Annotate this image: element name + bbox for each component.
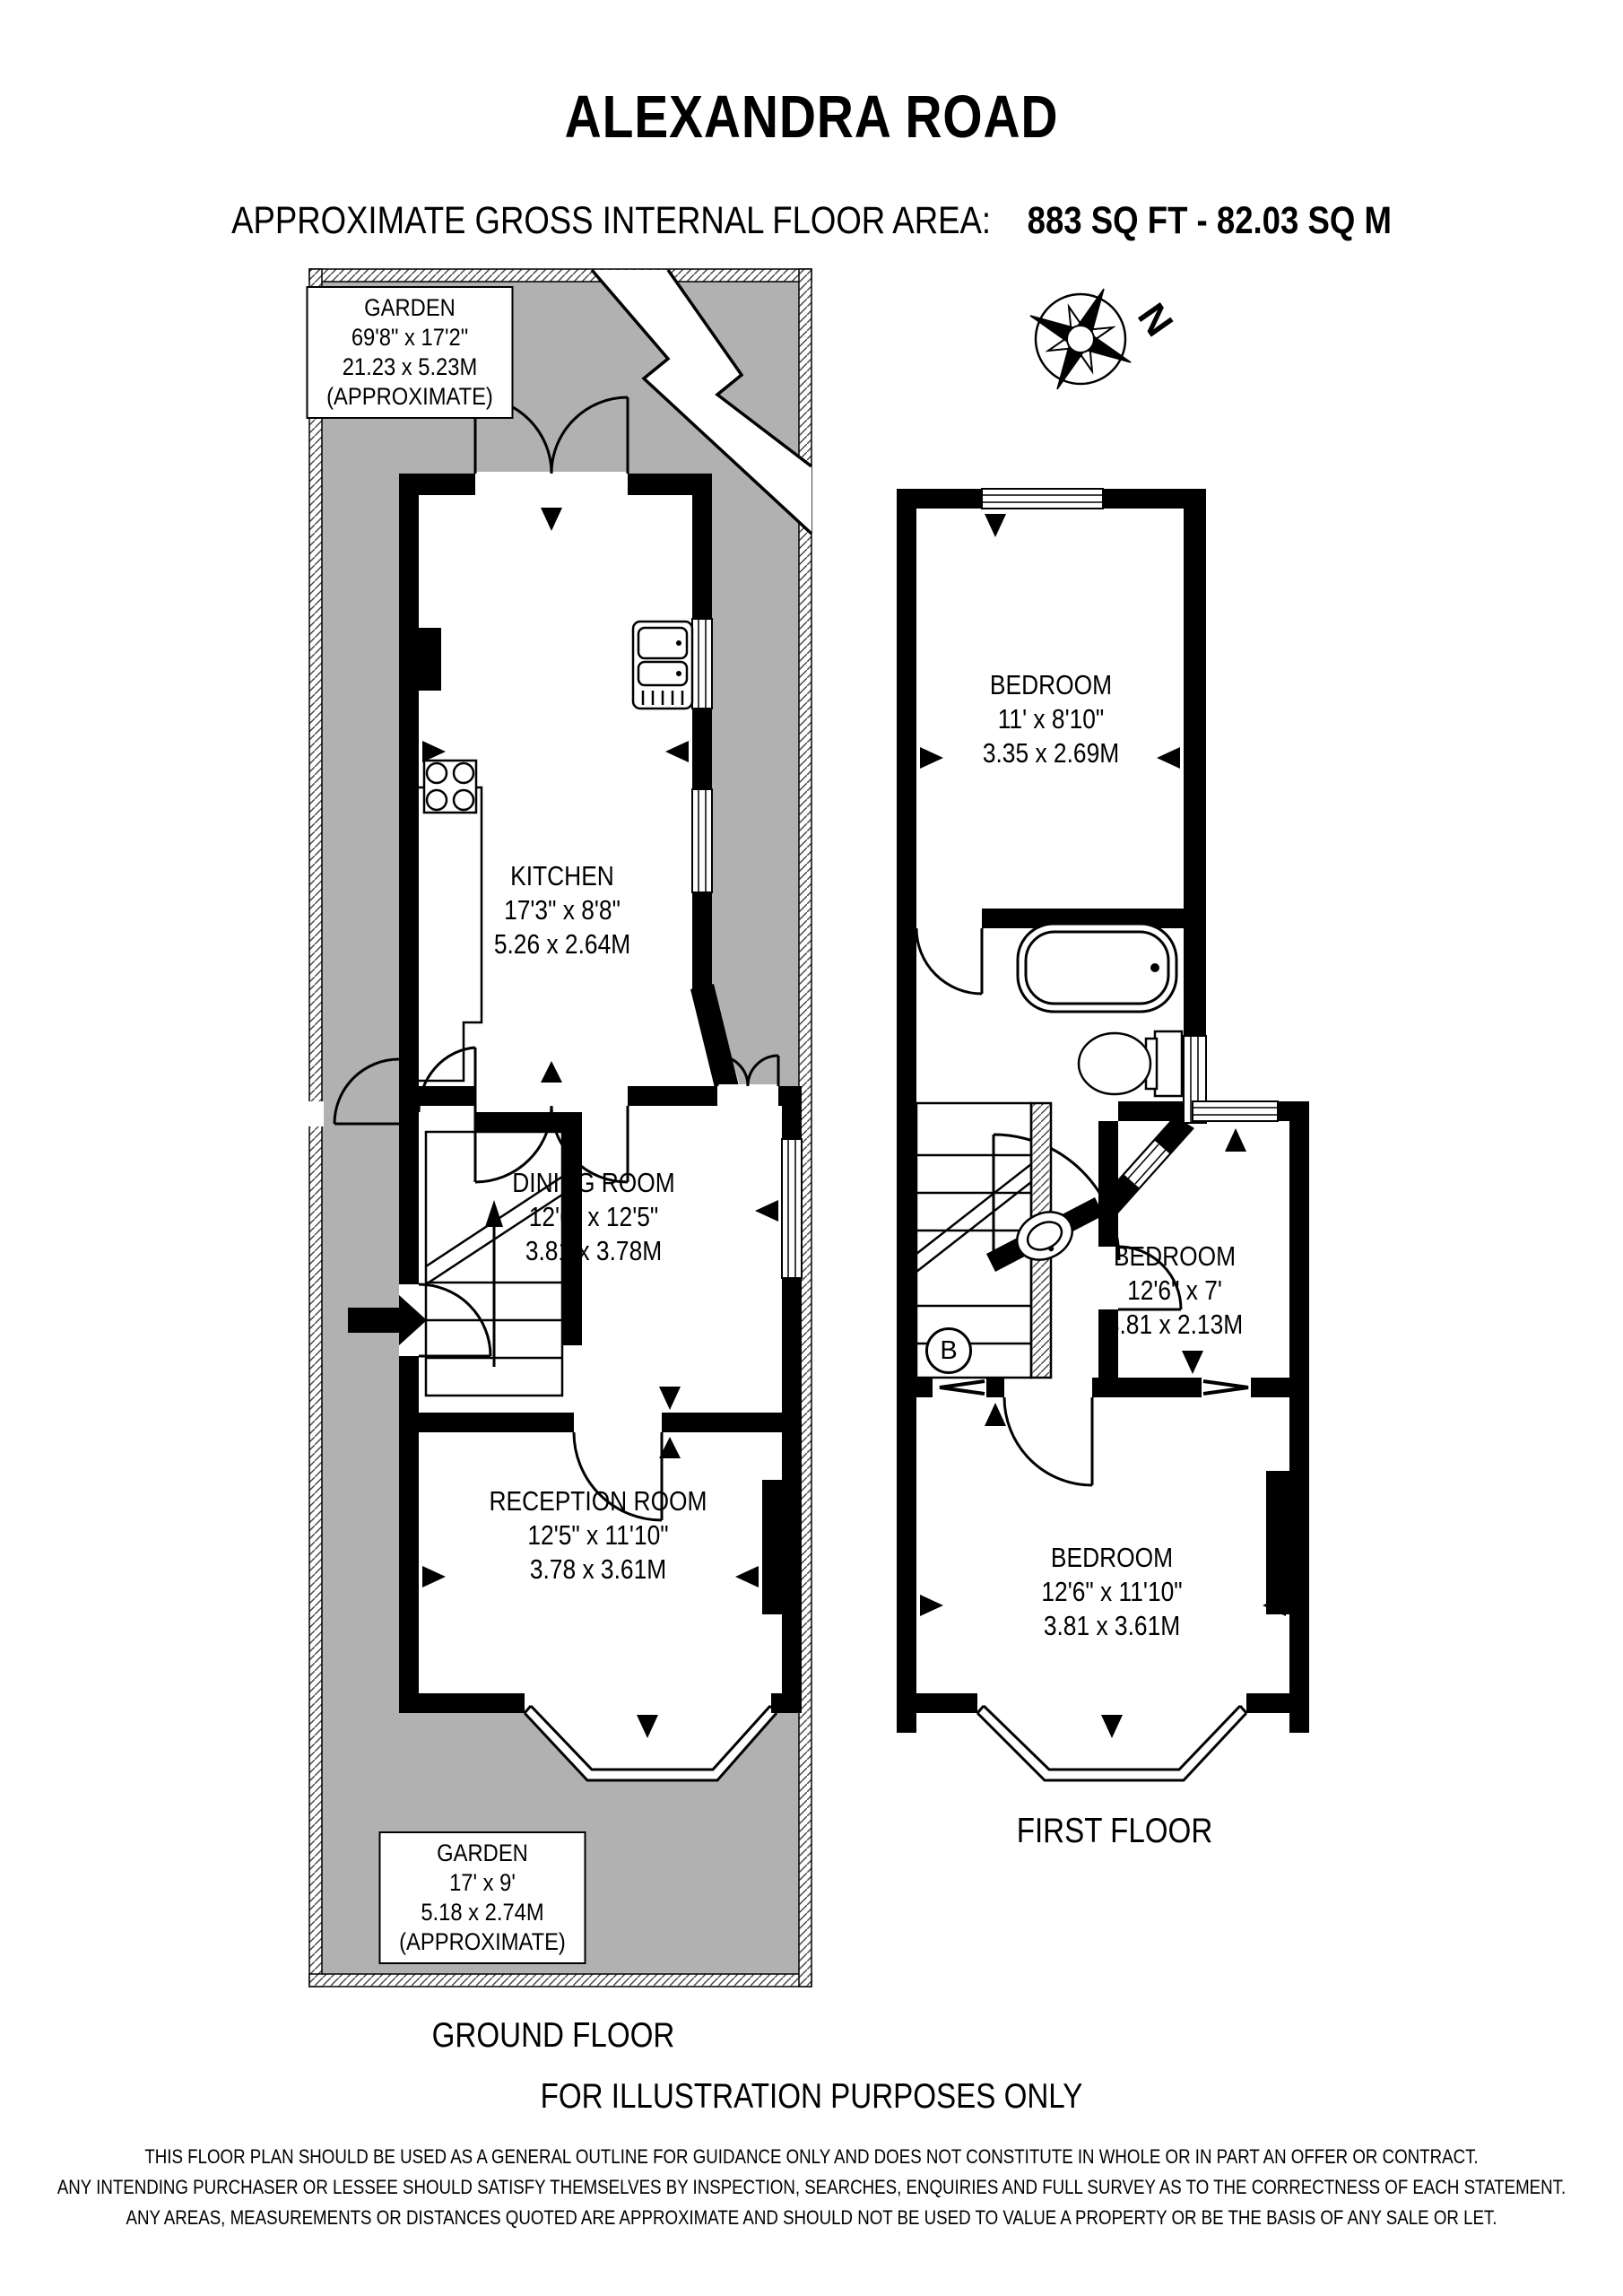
- garden-top-label: GARDEN 69'8" x 17'2" 21.23 x 5.23M (APPR…: [306, 286, 513, 419]
- garden-bottom-label: GARDEN 17' x 9' 5.18 x 2.74M (APPROXIMAT…: [378, 1831, 586, 1964]
- compass-rose-icon: [1030, 289, 1131, 389]
- subtitle-value: 883 SQ FT - 82.03 SQ M: [1028, 199, 1392, 242]
- bedroom-front-metric: 3.81 x 3.61M: [1041, 1609, 1182, 1643]
- kitchen-label: KITCHEN 17'3" x 8'8" 5.26 x 2.64M: [494, 859, 630, 961]
- bedroom-front-name: BEDROOM: [1041, 1541, 1182, 1575]
- bedroom-rear-metric: 3.35 x 2.69M: [983, 736, 1119, 770]
- boiler-marker: B: [925, 1327, 972, 1374]
- garden-top-note: (APPROXIMATE): [326, 382, 493, 412]
- bathtub-icon: [1018, 924, 1176, 1012]
- subtitle-prefix: APPROXIMATE GROSS INTERNAL FLOOR AREA:: [231, 199, 991, 242]
- dining-room-imperial: 12'6" x 12'5": [512, 1200, 675, 1234]
- bedroom-rear-label: BEDROOM 11' x 8'10" 3.35 x 2.69M: [983, 668, 1119, 770]
- subtitle: APPROXIMATE GROSS INTERNAL FLOOR AREA: 8…: [231, 199, 1392, 243]
- garden-top-metric: 21.23 x 5.23M: [326, 352, 493, 382]
- bedroom-middle-metric: 3.81 x 2.13M: [1107, 1308, 1243, 1342]
- garden-top-imperial: 69'8" x 17'2": [326, 323, 493, 352]
- floorplan-page: { "header": { "title": "ALEXANDRA ROAD",…: [0, 0, 1623, 2296]
- illustration-note: FOR ILLUSTRATION PURPOSES ONLY: [541, 2077, 1083, 2117]
- bedroom-rear-name: BEDROOM: [983, 668, 1119, 702]
- garden-bottom-imperial: 17' x 9': [399, 1868, 566, 1898]
- garden-top-name: GARDEN: [326, 293, 493, 323]
- first-floor-openings: [933, 1376, 1251, 1399]
- bedroom-middle-name: BEDROOM: [1107, 1239, 1243, 1274]
- ground-floor-label: GROUND FLOOR: [432, 2016, 675, 2056]
- hob-icon: [424, 761, 476, 813]
- kitchen-metric: 5.26 x 2.64M: [494, 927, 630, 961]
- garden-bottom-metric: 5.18 x 2.74M: [399, 1898, 566, 1927]
- kitchen-sink-icon: [633, 622, 692, 709]
- dining-room-label: DINING ROOM 12'6" x 12'5" 3.81 x 3.78M: [512, 1166, 675, 1268]
- disclaimer-line-3: ANY AREAS, MEASUREMENTS OR DISTANCES QUO…: [126, 2206, 1497, 2230]
- kitchen-imperial: 17'3" x 8'8": [494, 893, 630, 927]
- floorplan-drawing: [0, 0, 1623, 2296]
- reception-room-label: RECEPTION ROOM 12'5" x 11'10" 3.78 x 3.6…: [489, 1484, 707, 1587]
- first-floor-label: FIRST FLOOR: [1017, 1812, 1213, 1851]
- bedroom-rear-imperial: 11' x 8'10": [983, 702, 1119, 736]
- garden-bottom-name: GARDEN: [399, 1839, 566, 1868]
- reception-room-metric: 3.78 x 3.61M: [489, 1552, 707, 1587]
- toilet-icon: [1079, 1031, 1182, 1096]
- dining-room-metric: 3.81 x 3.78M: [512, 1234, 675, 1268]
- reception-room-imperial: 12'5" x 11'10": [489, 1518, 707, 1552]
- bedroom-front-label: BEDROOM 12'6" x 11'10" 3.81 x 3.61M: [1041, 1541, 1182, 1643]
- bedroom-middle-label: BEDROOM 12'6" x 7' 3.81 x 2.13M: [1107, 1239, 1243, 1342]
- garden-bottom-note: (APPROXIMATE): [399, 1927, 566, 1957]
- bedroom-front-imperial: 12'6" x 11'10": [1041, 1575, 1182, 1609]
- reception-room-name: RECEPTION ROOM: [489, 1484, 707, 1518]
- kitchen-name: KITCHEN: [494, 859, 630, 893]
- page-title: ALEXANDRA ROAD: [565, 83, 1059, 152]
- disclaimer-line-1: THIS FLOOR PLAN SHOULD BE USED AS A GENE…: [144, 2145, 1478, 2169]
- dining-room-name: DINING ROOM: [512, 1166, 675, 1200]
- disclaimer-line-2: ANY INTENDING PURCHASER OR LESSEE SHOULD…: [57, 2176, 1566, 2199]
- bedroom-middle-imperial: 12'6" x 7': [1107, 1274, 1243, 1308]
- boiler-marker-label: B: [940, 1336, 957, 1366]
